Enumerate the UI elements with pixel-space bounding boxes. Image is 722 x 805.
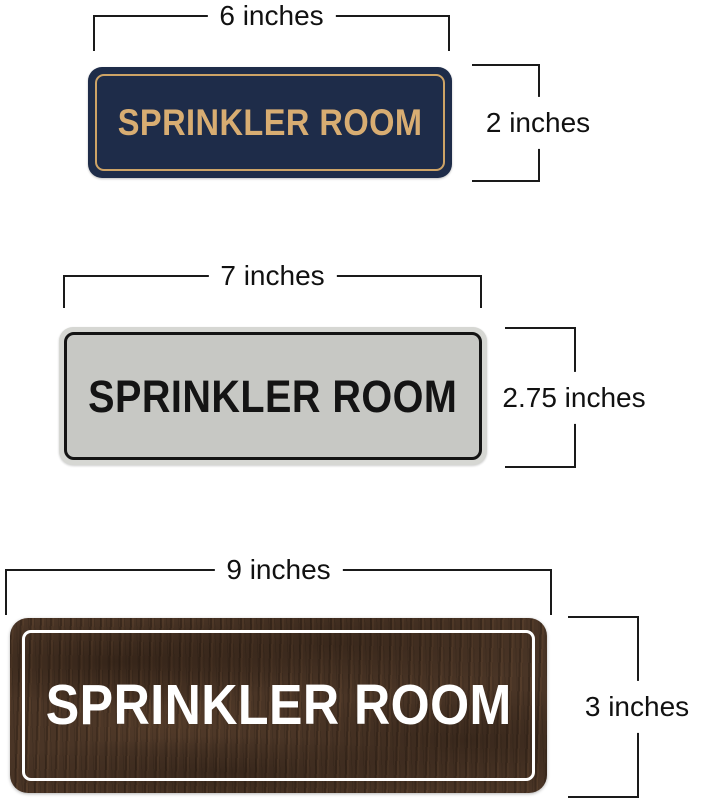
width-dimension-bracket-2: 7 inches xyxy=(63,275,482,277)
height-dimension-bracket-2: 2.75 inches xyxy=(505,327,576,468)
width-dimension-label-2: 7 inches xyxy=(208,260,336,292)
sign-plate-navy: SPRINKLER ROOM xyxy=(88,67,452,178)
height-dimension-label-2: 2.75 inches xyxy=(494,371,653,423)
sign-text-sprinkler-room: SPRINKLER ROOM xyxy=(46,677,512,734)
width-dimension-label-1: 6 inches xyxy=(207,0,335,32)
width-dimension-label-3: 9 inches xyxy=(214,554,342,586)
width-dimension-bracket-3: 9 inches xyxy=(5,569,552,571)
width-dimension-bracket-1: 6 inches xyxy=(93,15,450,17)
height-dimension-bracket-3: 3 inches xyxy=(568,616,639,798)
height-dimension-label-1: 2 inches xyxy=(478,97,598,149)
height-dimension-label-3: 3 inches xyxy=(577,681,697,733)
sign-plate-silver: SPRINKLER ROOM xyxy=(59,327,487,465)
product-dimension-diagram: 6 inches 2 inches SPRINKLER ROOM 7 inche… xyxy=(0,0,722,805)
sign-text-sprinkler-room: SPRINKLER ROOM xyxy=(118,104,423,141)
sign-plate-wood: SPRINKLER ROOM xyxy=(10,618,547,793)
height-dimension-bracket-1: 2 inches xyxy=(472,64,540,182)
sign-text-sprinkler-room: SPRINKLER ROOM xyxy=(88,374,457,419)
